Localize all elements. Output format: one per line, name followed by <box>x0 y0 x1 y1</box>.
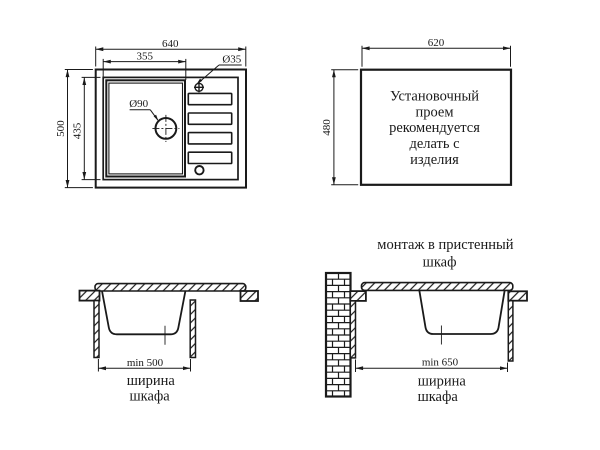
svg-text:шкаф: шкаф <box>423 255 457 271</box>
svg-text:355: 355 <box>137 50 154 62</box>
svg-text:проем: проем <box>415 104 453 120</box>
svg-text:min 650: min 650 <box>422 357 459 369</box>
svg-text:ширина: ширина <box>127 373 176 389</box>
svg-text:min 500: min 500 <box>127 357 164 369</box>
svg-text:Установочный: Установочный <box>390 89 479 105</box>
svg-text:Ø90: Ø90 <box>129 98 148 110</box>
svg-text:шкафа: шкафа <box>129 389 170 405</box>
svg-text:изделия: изделия <box>410 152 459 168</box>
svg-text:500: 500 <box>55 120 67 137</box>
svg-text:480: 480 <box>321 119 333 136</box>
svg-text:монтаж в пристенный: монтаж в пристенный <box>377 237 513 253</box>
svg-text:рекомендуется: рекомендуется <box>389 120 480 136</box>
svg-text:шкафа: шкафа <box>418 389 459 405</box>
svg-text:Ø35: Ø35 <box>222 53 241 65</box>
svg-text:435: 435 <box>72 122 84 139</box>
svg-text:делать с: делать с <box>409 136 459 152</box>
svg-text:620: 620 <box>428 37 445 49</box>
svg-text:ширина: ширина <box>418 374 467 390</box>
svg-text:640: 640 <box>162 38 179 50</box>
